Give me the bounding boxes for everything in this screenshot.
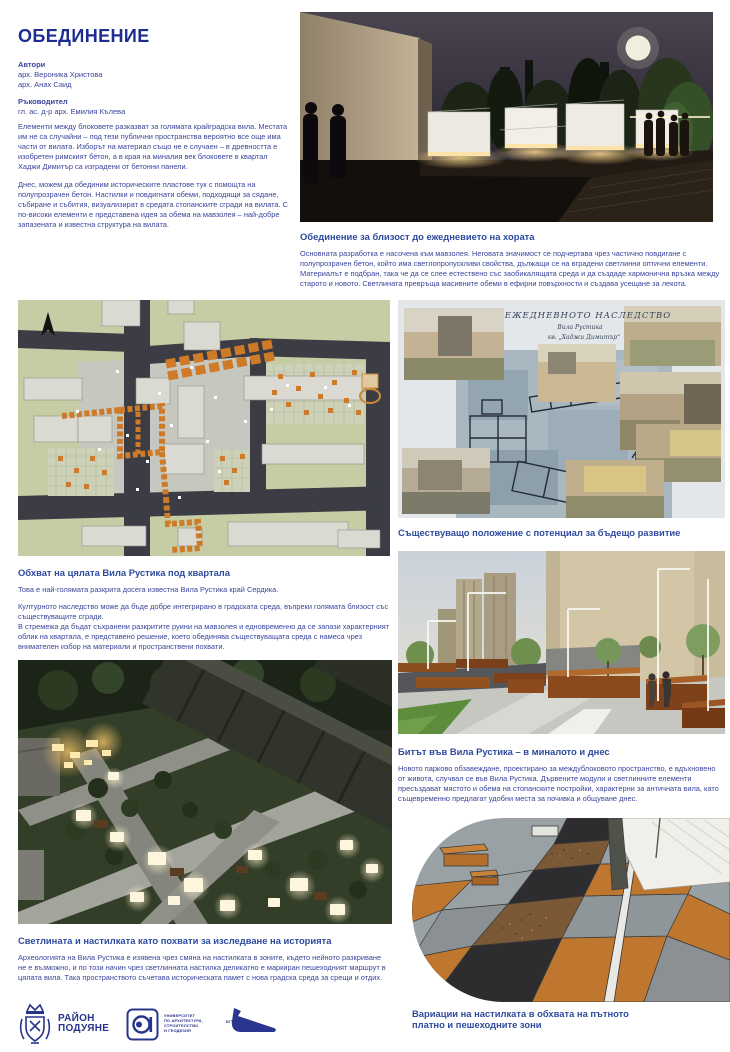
park-render-image [398, 551, 725, 734]
district-logo-line2: ПОДУЯНЕ [58, 1024, 109, 1035]
paving-sketch-image [412, 818, 730, 1002]
scope-heading: Обхват на цялата Вила Рустика под кварта… [18, 567, 398, 578]
night-aerial-graphic [18, 660, 392, 924]
park-render-graphic [398, 551, 725, 734]
author-2: арх. Анах Саид [18, 80, 278, 90]
supervisor-name: гл. ас. д-р арх. Емилия Кълева [18, 107, 278, 117]
page-title: ОБЕДИНЕНИЕ [18, 26, 150, 47]
collage-title-line3: кв. „Хаджи Димитър“ [548, 334, 620, 341]
collage-title-line1: ЕЖЕДНЕВНОТО НАСЛЕДСТВО [504, 311, 671, 321]
night-aerial-image [18, 660, 392, 924]
scope-body: Това е най-голямата разкрита досега изве… [18, 585, 396, 659]
intro-paragraph-2: Днес, можем да обединим историческите пл… [18, 180, 290, 230]
collage-title-line2: Вила Рустика [556, 324, 603, 331]
light-heading: Светлината и настилката като похвати за … [18, 935, 398, 946]
district-crest-icon [18, 1003, 52, 1045]
university-emblem-icon [126, 1008, 159, 1041]
unification-body: Основната разработка е насочена към мавз… [300, 249, 723, 289]
district-logo: РАЙОН ПОДУЯНЕ [18, 1002, 118, 1046]
university-logo: УНИВЕРСИТЕТ ПО АРХИТЕКТУРА, СТРОИТЕЛСТВО… [126, 1004, 216, 1044]
night-render-image [300, 12, 713, 222]
life-body: Новото парково обзавеждане, проектирано … [398, 764, 722, 804]
unification-heading: Обединение за близост до ежедневието на … [300, 231, 720, 242]
existing-collage-image: ЕЖЕДНЕВНОТО НАСЛЕДСТВО Вила Рустика кв. … [398, 300, 725, 518]
author-1: арх. Вероника Христова [18, 70, 278, 80]
existing-caption: Съществуващо положение с потенциал за бъ… [398, 527, 725, 538]
partner-logo-label: БГТА [226, 1020, 236, 1024]
site-plan-graphic [18, 300, 390, 556]
life-heading: Битът във Вила Рустика – в миналото и дн… [398, 746, 722, 757]
authors-label: Автори [18, 60, 278, 70]
paving-sketch-graphic [412, 818, 730, 1002]
scope-paragraph-3: В стремежа да бъдат съхранени разкритите… [18, 622, 396, 652]
poster-board: ОБЕДИНЕНИЕ Автори арх. Вероника Христова… [0, 0, 730, 1052]
scope-paragraph-1: Това е най-голямата разкрита досега изве… [18, 585, 396, 595]
light-body: Археологията на Вила Рустика е изявена ч… [18, 953, 390, 983]
scope-paragraph-2: Културното наследство може да бъде добре… [18, 602, 396, 622]
university-logo-line4: И ГЕОДЕЗИЯ [164, 1029, 203, 1034]
partner-logo: БГТА [224, 1006, 284, 1042]
intro-paragraph-1: Елементи между блоковете разказват за го… [18, 122, 290, 172]
night-render-graphic [300, 12, 713, 222]
site-plan-image [18, 300, 390, 556]
supervisor-label: Ръководител [18, 97, 278, 107]
existing-collage-graphic: ЕЖЕДНЕВНОТО НАСЛЕДСТВО Вила Рустика кв. … [398, 300, 725, 518]
authors-block: Автори арх. Вероника Христова арх. Анах … [18, 60, 278, 116]
paving-caption: Вариации на настилката в обхвата на пътн… [412, 1008, 662, 1030]
